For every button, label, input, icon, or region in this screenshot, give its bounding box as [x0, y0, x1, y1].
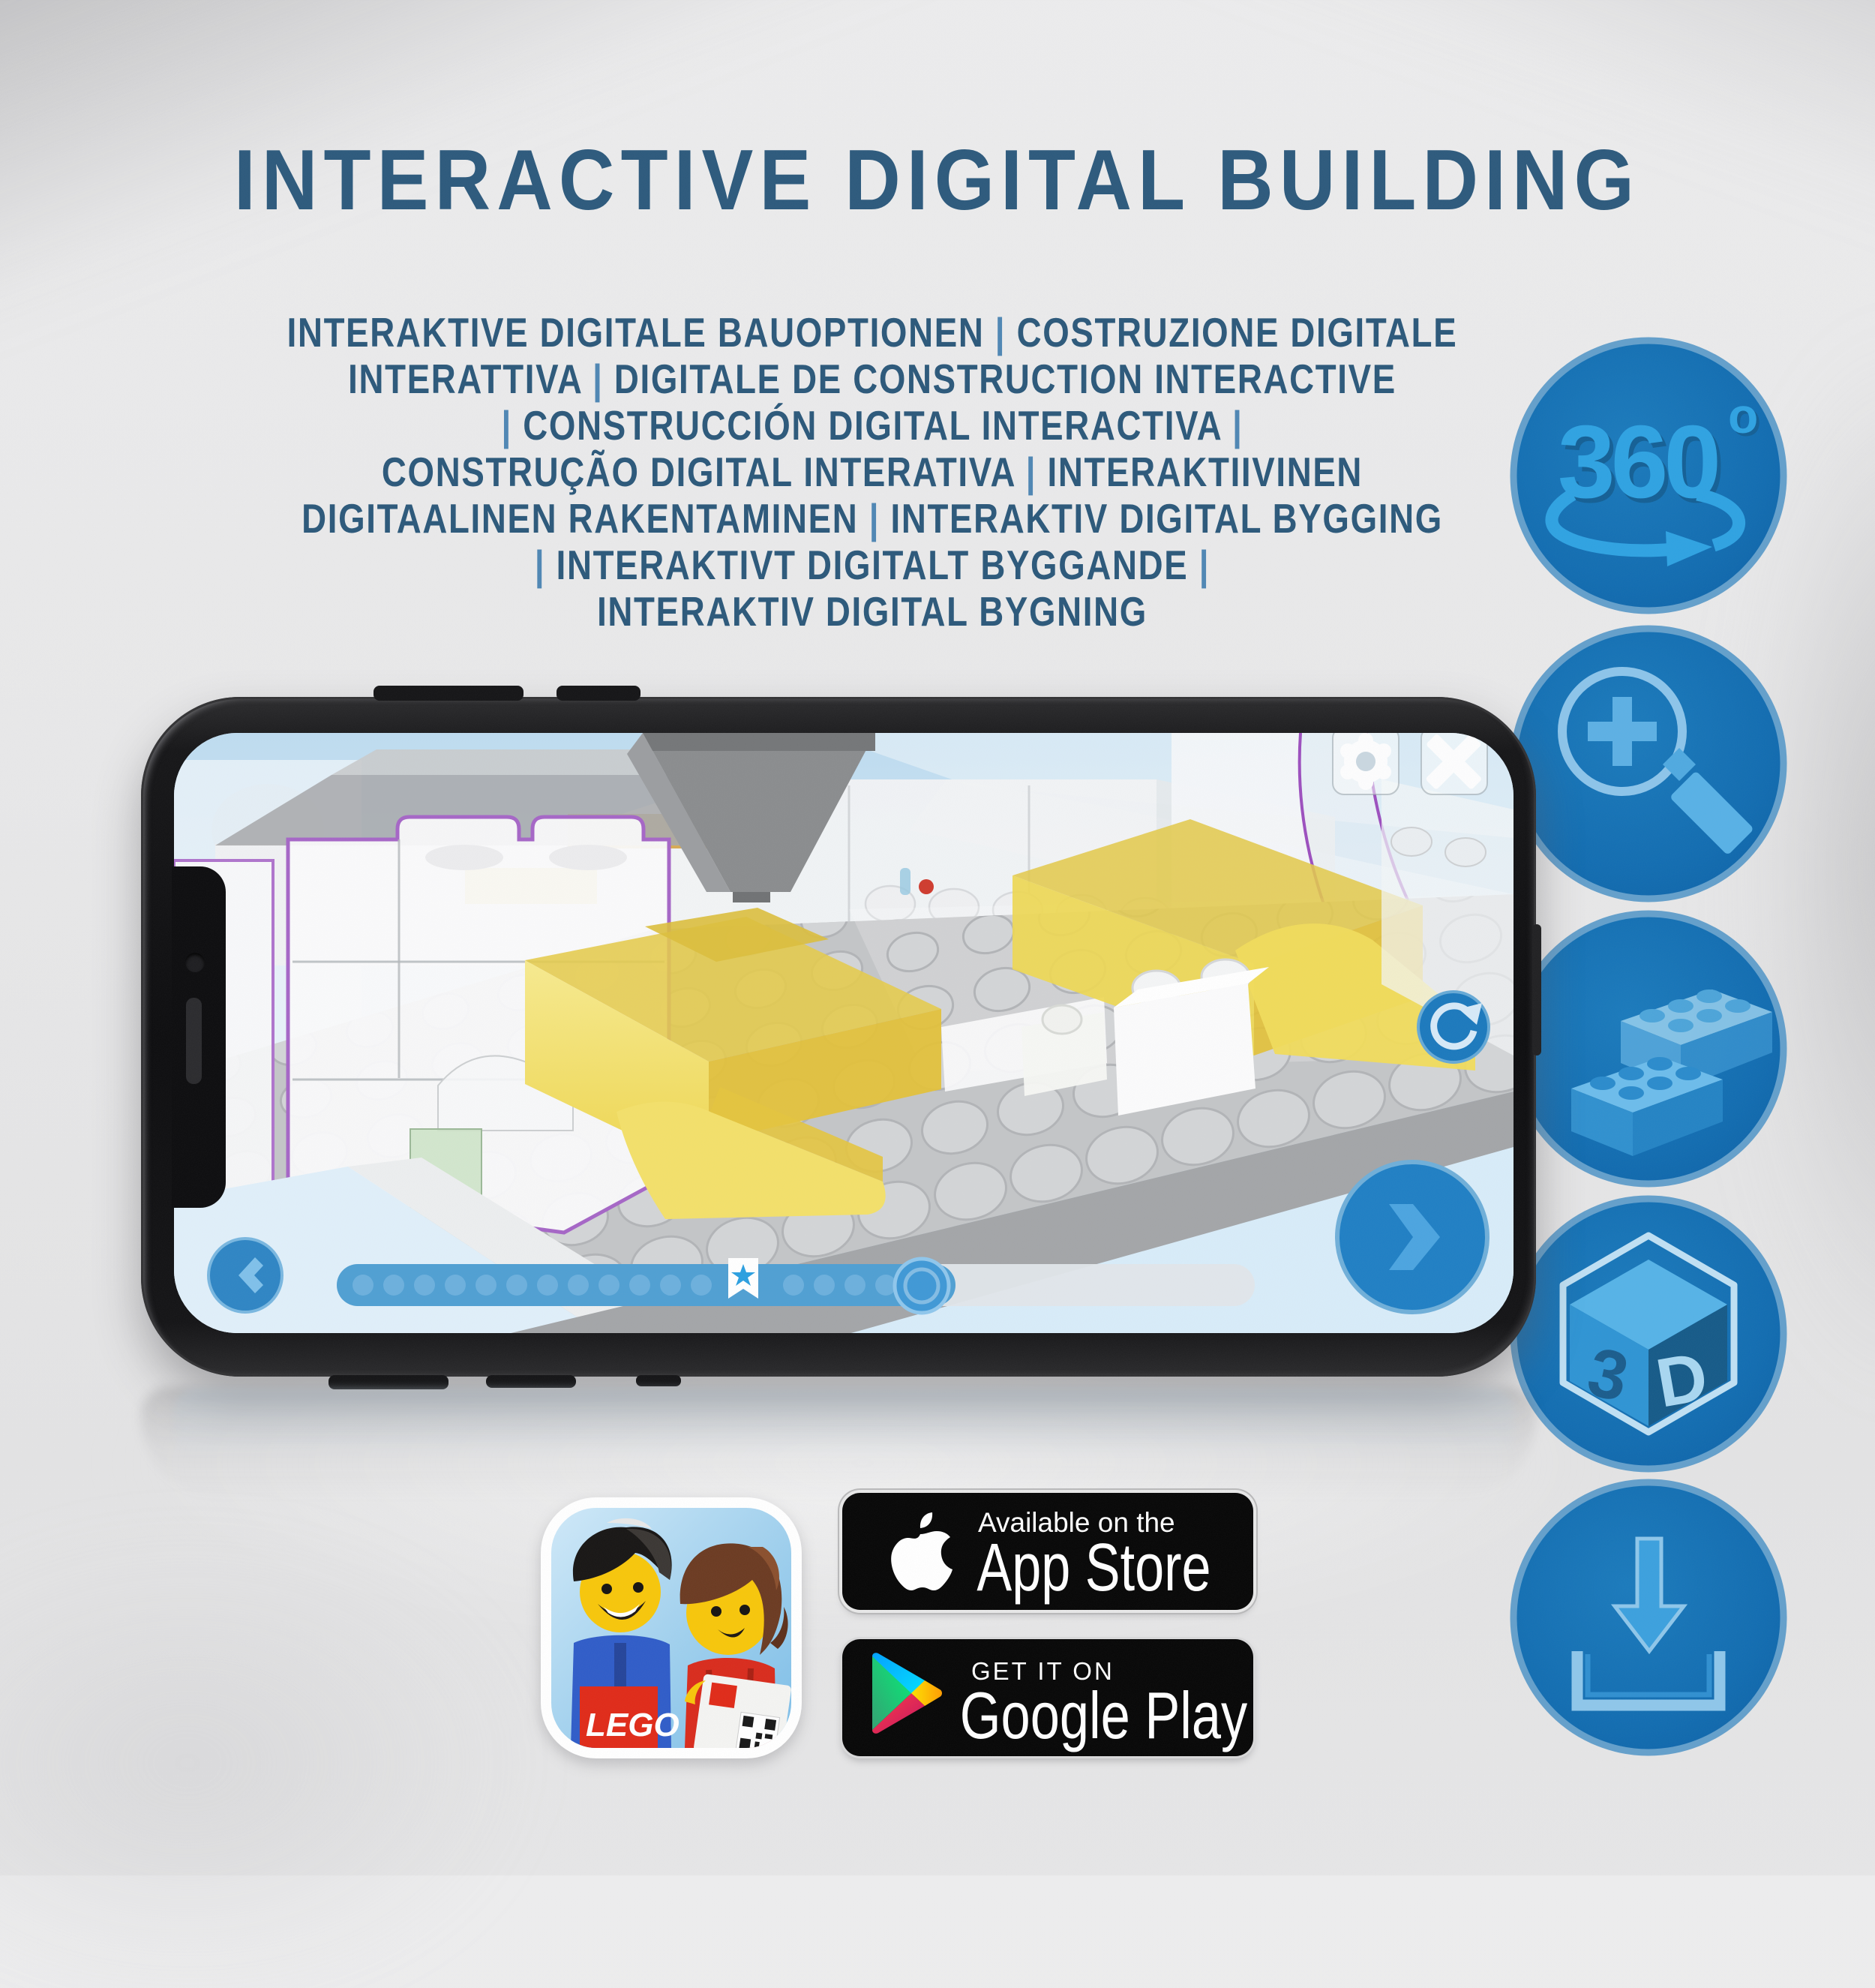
svg-text:o: o [1728, 388, 1758, 443]
svg-text:LEGO: LEGO [586, 1707, 679, 1743]
svg-text:360: 360 [1558, 404, 1717, 520]
svg-text:Google Play: Google Play [960, 1678, 1248, 1752]
svg-text:App Store: App Store [976, 1530, 1210, 1605]
